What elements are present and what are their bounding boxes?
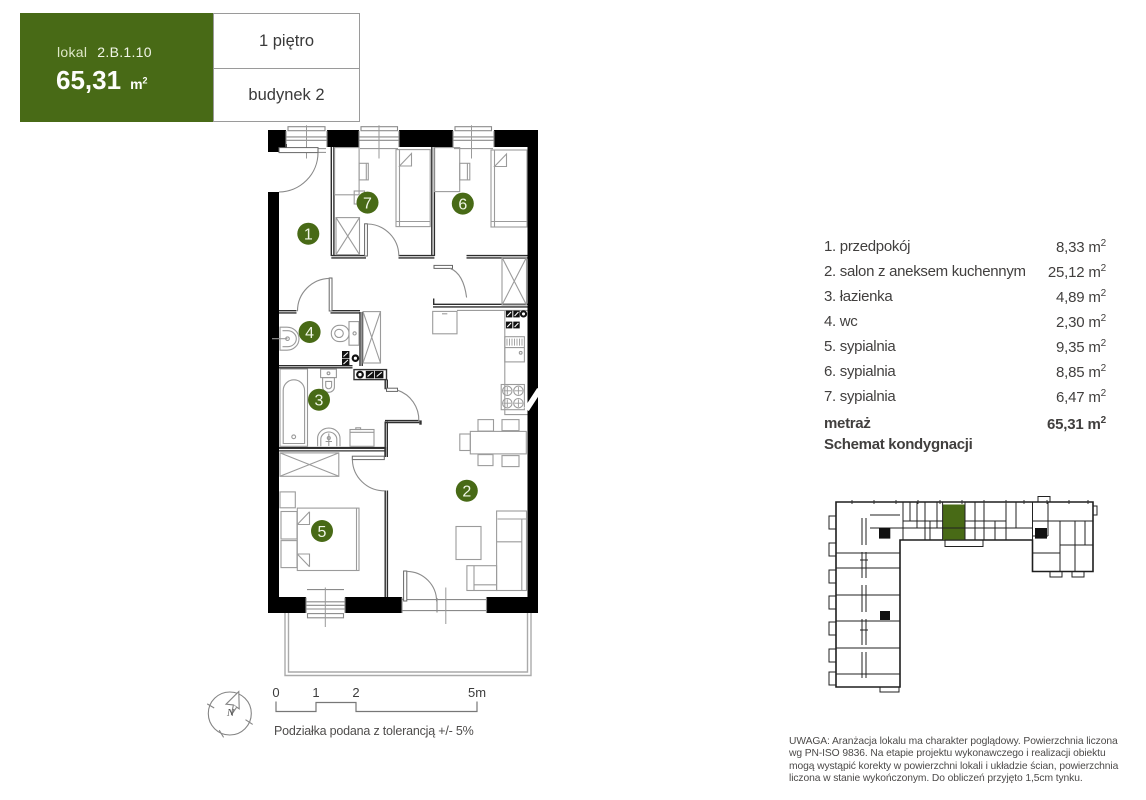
svg-text:3: 3	[315, 393, 324, 410]
svg-text:7: 7	[363, 196, 372, 213]
svg-text:5: 5	[318, 524, 327, 541]
svg-text:4: 4	[305, 325, 314, 342]
svg-text:2: 2	[462, 484, 471, 501]
svg-text:N: N	[226, 707, 235, 719]
svg-text:1: 1	[304, 227, 313, 244]
svg-text:6: 6	[458, 197, 467, 214]
